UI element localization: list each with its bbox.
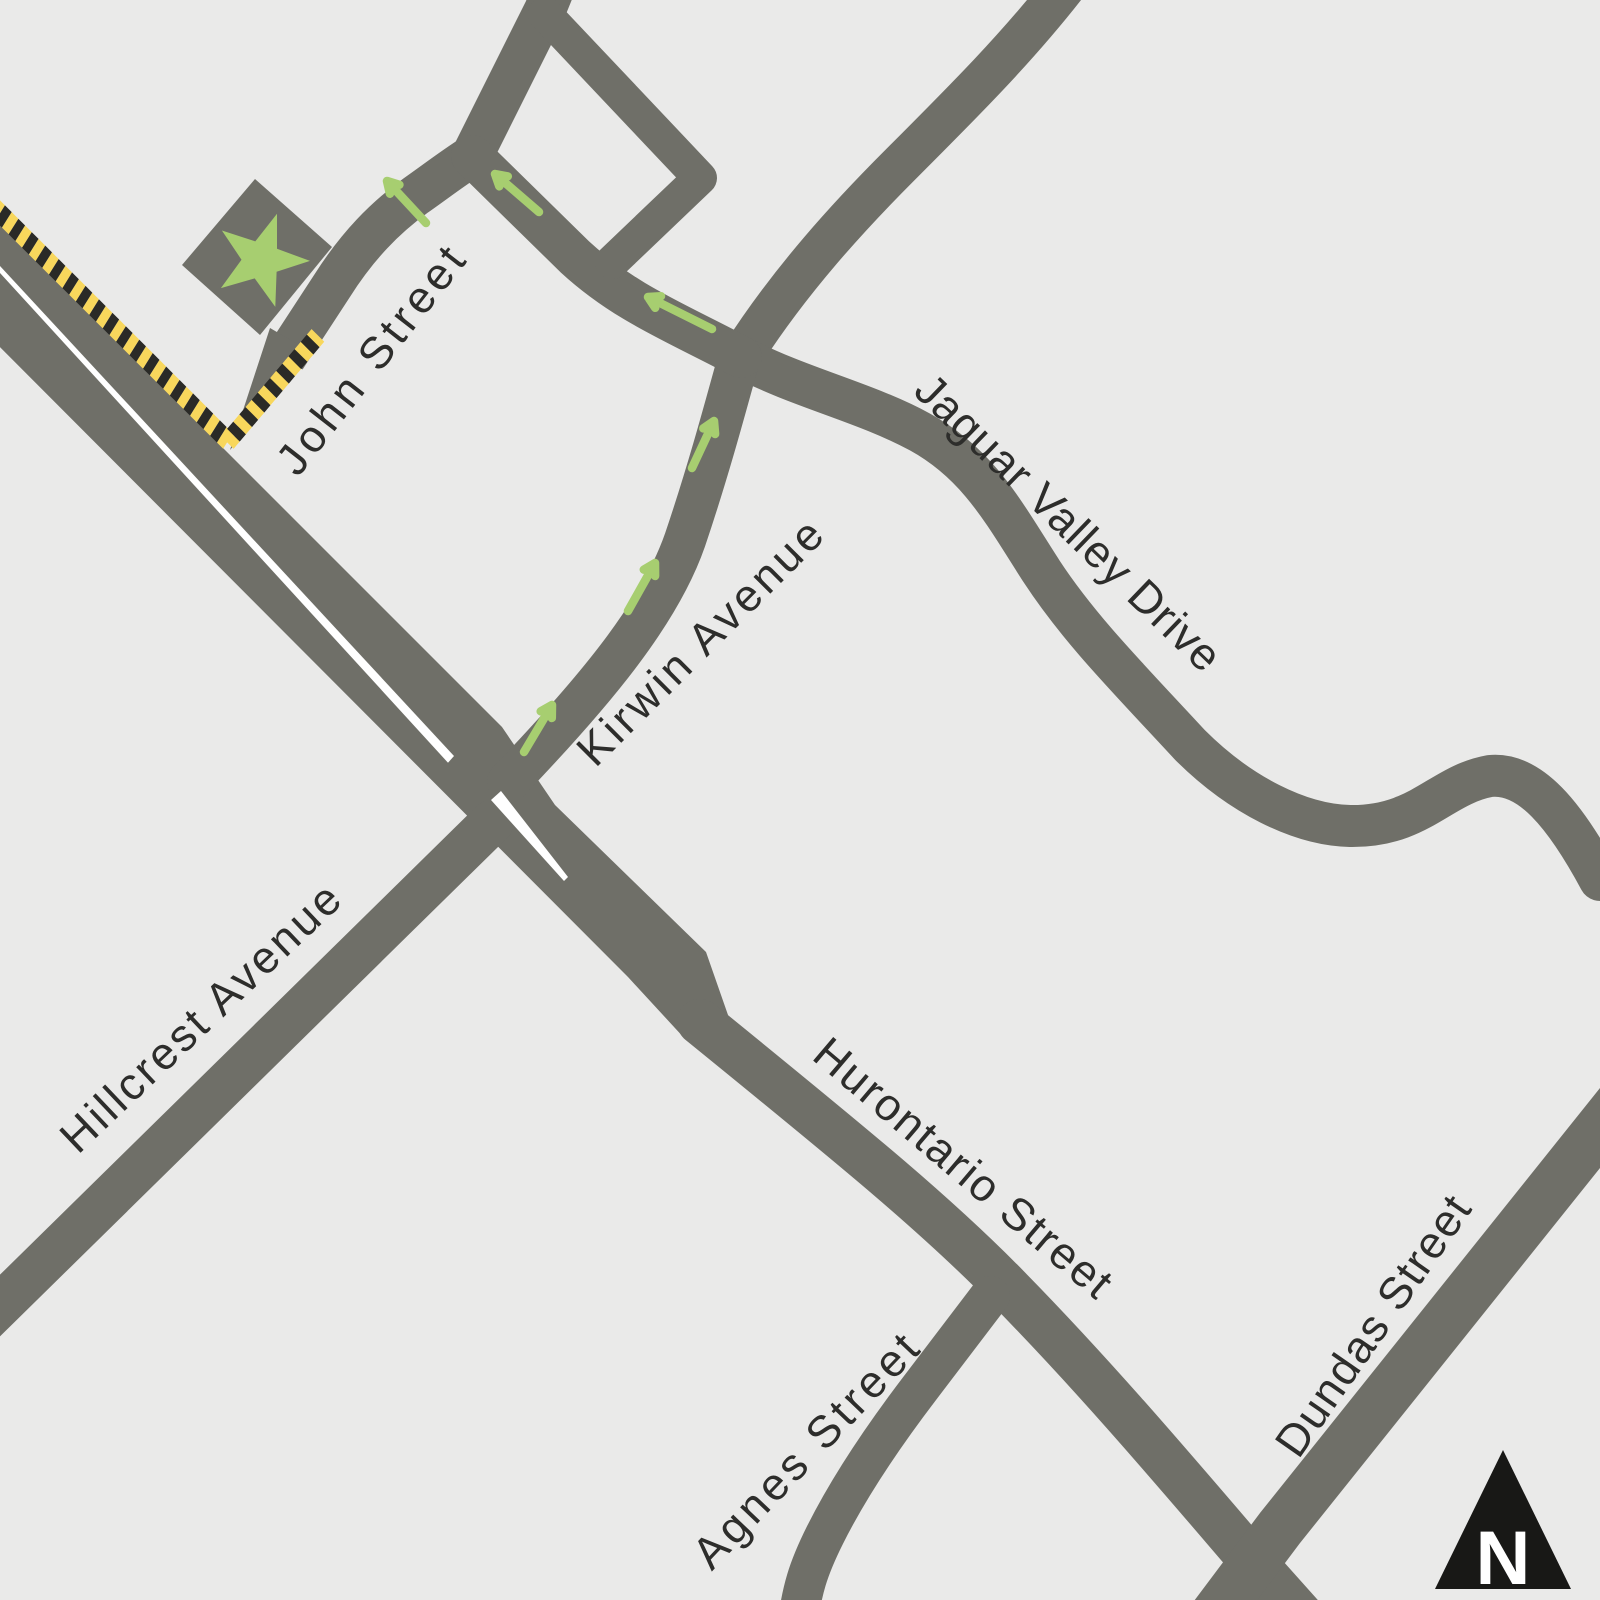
svg-text:N: N [1476, 1516, 1531, 1600]
